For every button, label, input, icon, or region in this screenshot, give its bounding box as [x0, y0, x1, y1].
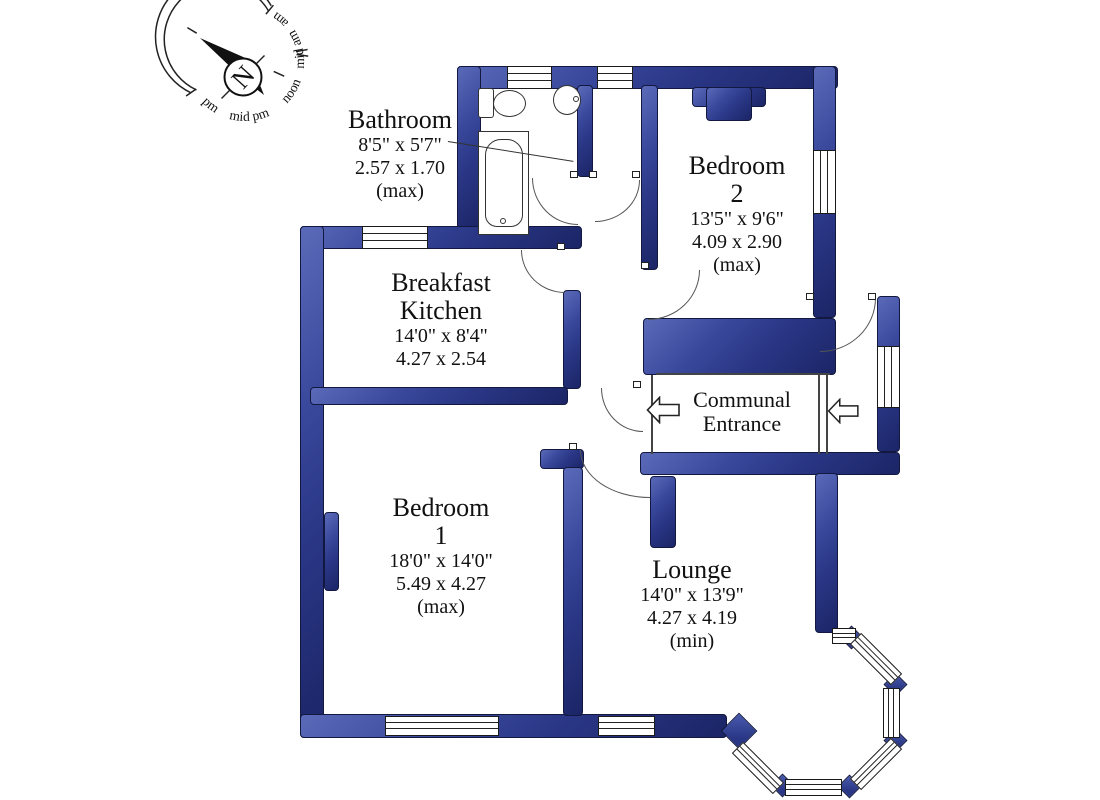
door-arc-vestibule [595, 180, 640, 222]
room-note: (max) [348, 180, 452, 203]
door-arc-bedroom2 [648, 270, 700, 320]
label-lounge: Lounge 14'0" x 13'9" 4.27 x 4.19 (min) [640, 556, 744, 653]
wall-entrance-slab [643, 318, 836, 375]
svg-text:mid am: mid am [284, 28, 307, 69]
wall-kitchen-top [300, 226, 582, 249]
window-bedroom1-bottom [385, 716, 499, 736]
door-hinge [633, 381, 641, 388]
room-dim-ft: 14'0" x 8'4" [391, 325, 491, 348]
svg-text:pm: pm [200, 94, 223, 116]
door-hinge [570, 171, 578, 178]
bay-window-se [850, 738, 902, 790]
svg-text:noon: noon [278, 76, 304, 105]
wall-bedroom1-top-right [540, 449, 584, 469]
compass-rose: pm mid pm noon mid am am N [140, 0, 360, 160]
label-communal-entrance: Communal Entrance [693, 388, 791, 436]
room-number: 2 [689, 180, 786, 208]
compass-label-mid-pm: mid pm [228, 104, 271, 124]
room-dim-ft: 13'5" x 9'6" [689, 208, 786, 231]
chimney-breast-bedroom1 [324, 512, 339, 591]
room-dim-ft: 14'0" x 13'9" [640, 584, 744, 607]
door-hinge [806, 293, 814, 300]
door-hinge [868, 293, 876, 300]
wall-bedroom1-lounge-divider [563, 467, 583, 716]
room-dim-m: 5.49 x 4.27 [389, 573, 493, 596]
window-bathroom-top [507, 66, 552, 89]
bay-window-ne [850, 633, 902, 685]
wall-bedroom2-left [641, 85, 658, 270]
bathtub-drain [500, 218, 506, 224]
room-dim-m: 4.27 x 4.19 [640, 607, 744, 630]
room-dim-m: 2.57 x 1.70 [348, 157, 452, 180]
bay-window-south [785, 779, 842, 796]
window-porch [877, 346, 900, 408]
room-name: Lounge [640, 556, 744, 584]
room-dim-m: 4.09 x 2.90 [689, 231, 786, 254]
room-name: Kitchen [391, 297, 491, 325]
wall-entrance-bottom [640, 452, 900, 475]
door-arc-kitchen [521, 250, 565, 293]
room-note: (max) [389, 596, 493, 619]
door-hinge [632, 171, 640, 178]
door-hinge [589, 171, 597, 178]
room-note: (min) [640, 630, 744, 653]
corridor-line-top [656, 373, 830, 375]
door-arc-bathroom [532, 178, 578, 225]
room-name: Bathroom [348, 106, 452, 134]
entrance-arrow-icon [826, 398, 860, 424]
room-dim-ft: 18'0" x 14'0" [389, 550, 493, 573]
bay-window-sw [732, 742, 784, 794]
compass-label-mid-am: mid am [284, 28, 307, 69]
room-note: (max) [689, 254, 786, 277]
room-dim-ft: 8'5" x 5'7" [348, 134, 452, 157]
compass-label-pm: pm [200, 94, 223, 116]
toilet-bowl [493, 90, 526, 117]
door-hinge [569, 443, 577, 450]
label-bathroom: Bathroom 8'5" x 5'7" 2.57 x 1.70 (max) [348, 106, 452, 203]
wall-kitchen-bedroom1-divider [310, 387, 568, 405]
svg-text:mid pm: mid pm [228, 104, 271, 124]
room-number: 1 [389, 522, 493, 550]
window-kitchen [362, 226, 428, 249]
compass-label-am: am [269, 9, 291, 31]
chimney-breast-bedroom2-inner [706, 87, 752, 121]
svg-text:am: am [269, 9, 291, 31]
label-breakfast-kitchen: Breakfast Kitchen 14'0" x 8'4" 4.27 x 2.… [391, 269, 491, 371]
entrance-arrow-icon [645, 396, 681, 424]
corridor-divider-line-1 [818, 375, 820, 454]
room-name: Breakfast [391, 269, 491, 297]
label-bedroom1: Bedroom 1 18'0" x 14'0" 5.49 x 4.27 (max… [389, 494, 493, 619]
window-vestibule-top [597, 66, 633, 89]
wall-kitchen-right [563, 290, 581, 389]
room-name: Communal [693, 388, 791, 412]
door-arc-hall [601, 388, 643, 432]
door-arc-bedroom1 [580, 450, 650, 498]
room-name: Bedroom [389, 494, 493, 522]
toilet-cistern [478, 88, 494, 118]
room-name: Bedroom [689, 152, 786, 180]
door-arc-front-door [820, 298, 876, 352]
sink-tap [573, 96, 579, 102]
window-lounge-bottom [598, 716, 655, 736]
bay-window-east [883, 688, 900, 738]
wall-outer-left [300, 226, 324, 738]
wall-lounge-left-stub [650, 476, 676, 548]
door-hinge [557, 243, 565, 250]
compass-label-noon: noon [278, 76, 304, 105]
window-bedroom2 [813, 150, 836, 214]
wall-lounge-right [815, 473, 838, 633]
door-hinge [641, 262, 649, 269]
floor-plan: pm mid pm noon mid am am N [0, 0, 1100, 800]
wall-bottom [300, 714, 727, 738]
label-bedroom2: Bedroom 2 13'5" x 9'6" 4.09 x 2.90 (max) [689, 152, 786, 277]
room-name: Entrance [693, 412, 791, 436]
room-dim-m: 4.27 x 2.54 [391, 348, 491, 371]
